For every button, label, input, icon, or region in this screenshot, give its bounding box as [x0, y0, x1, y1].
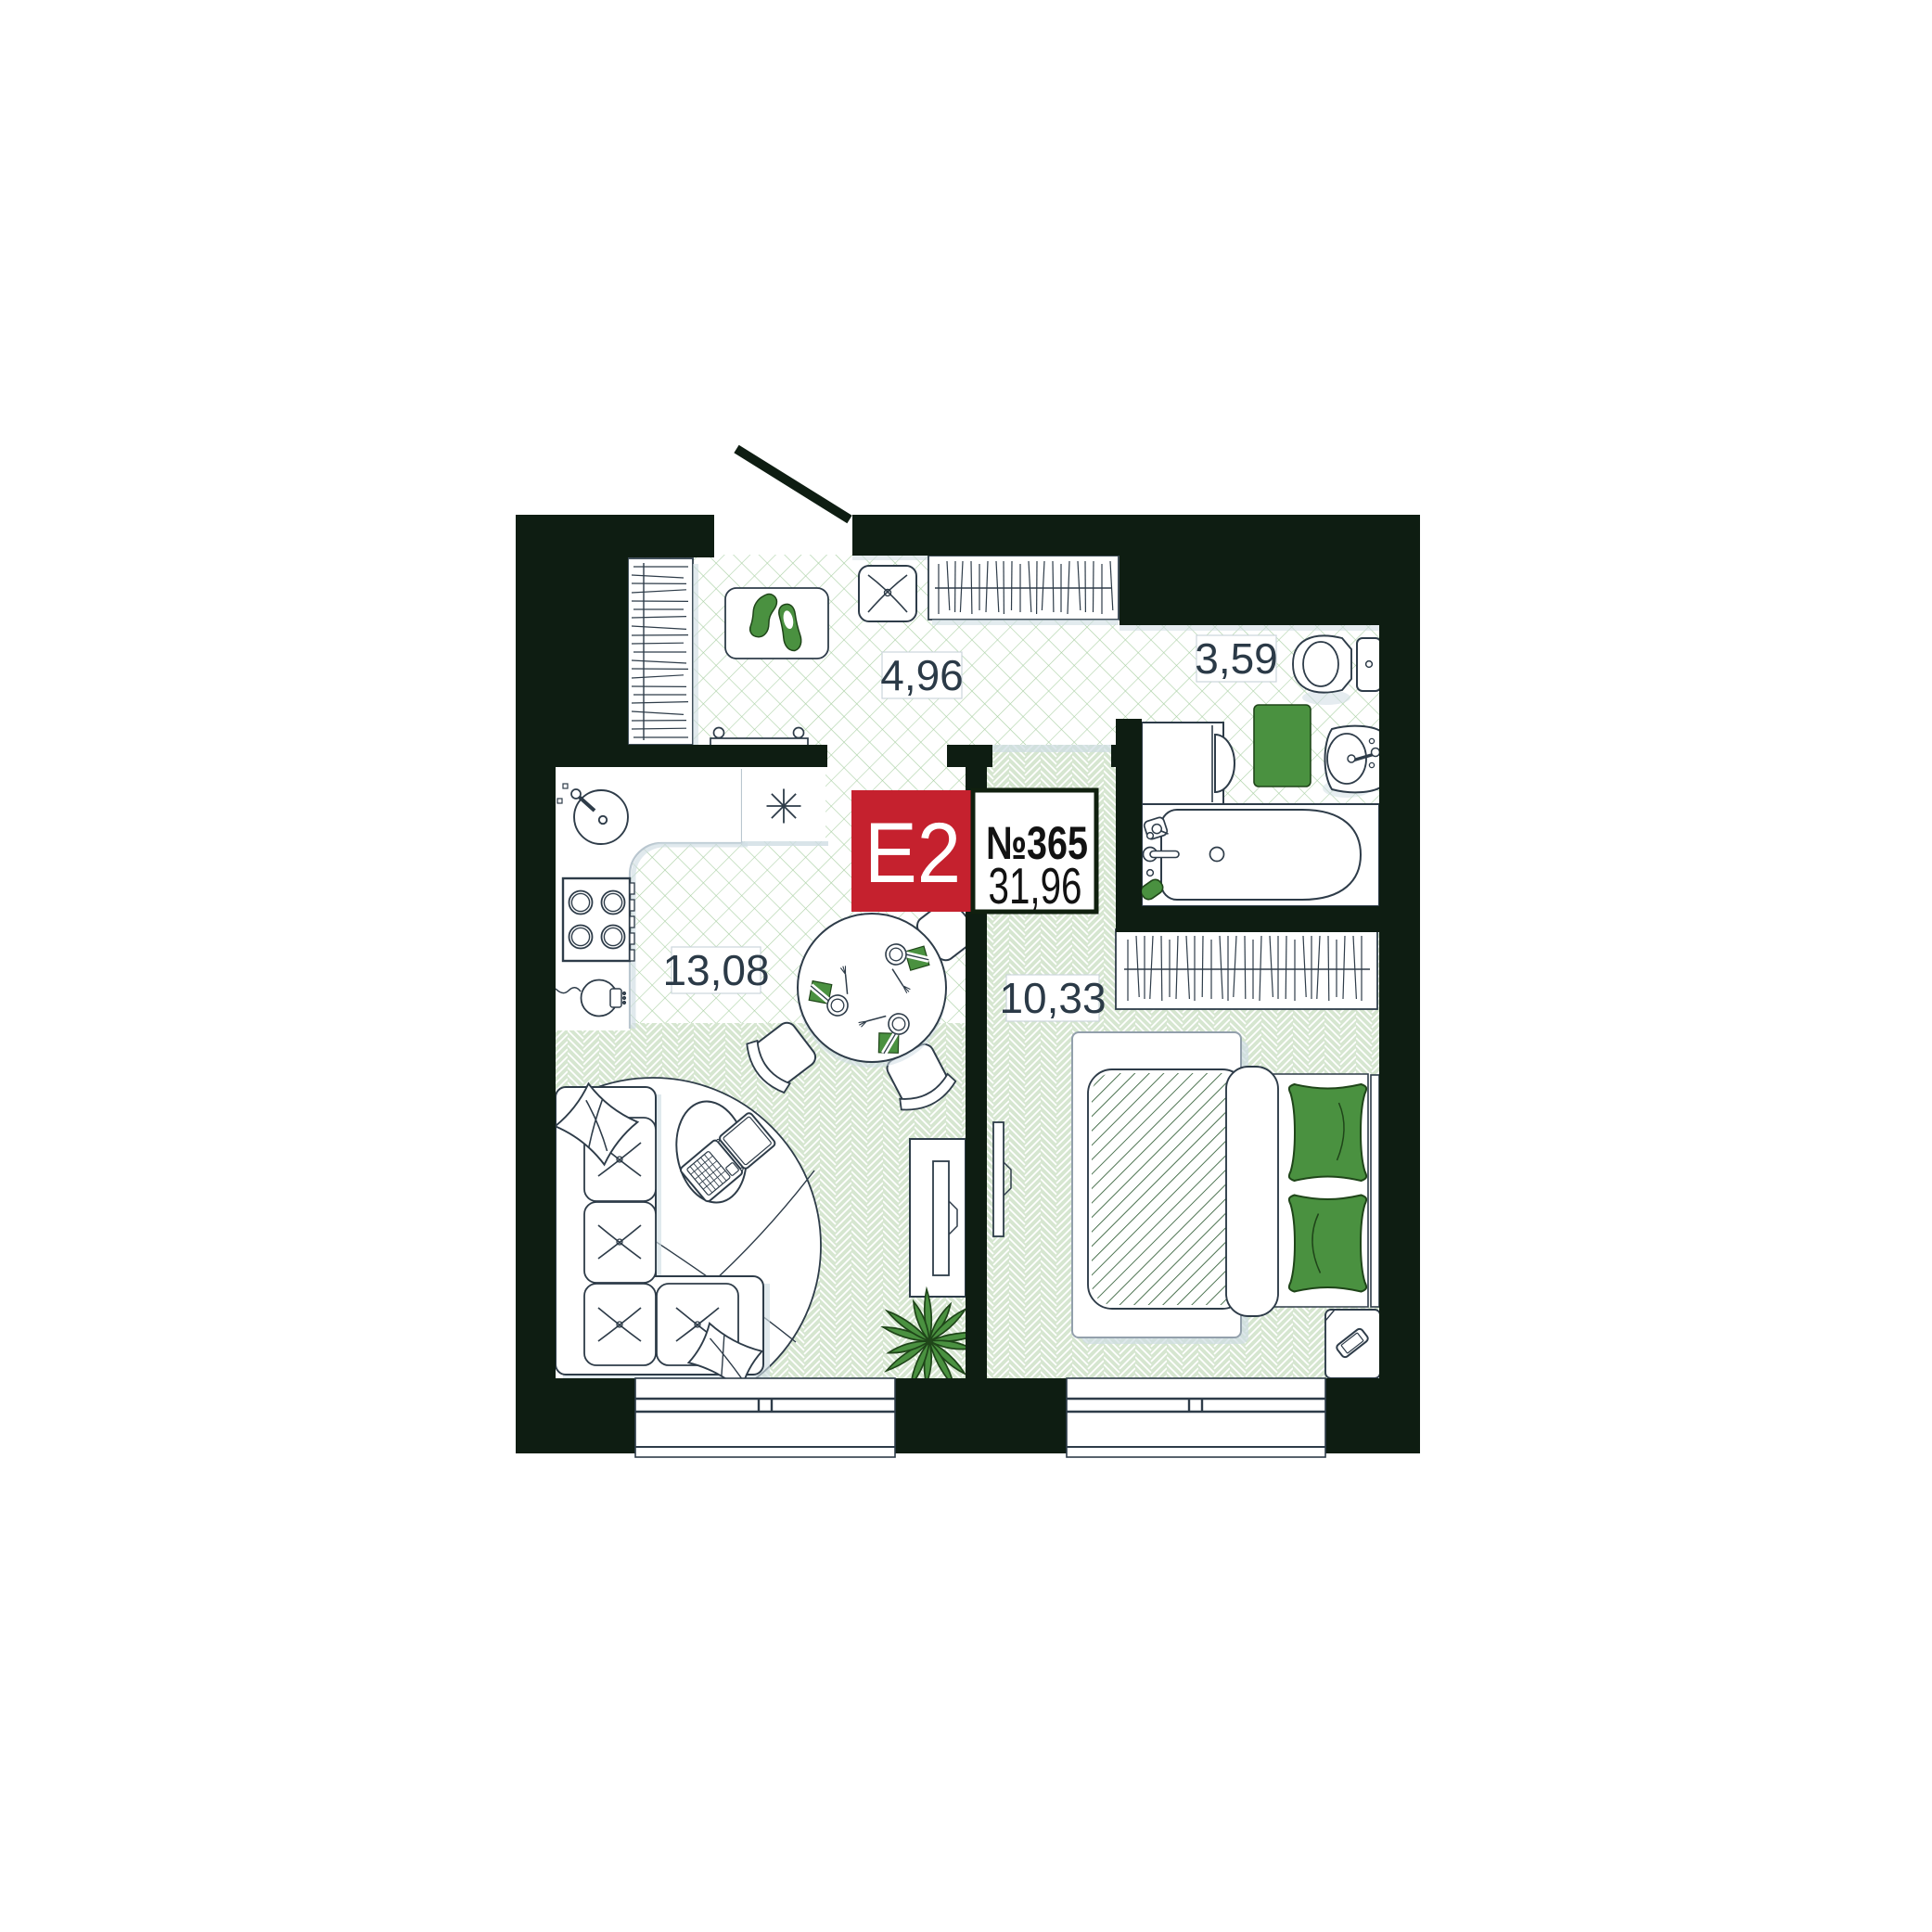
svg-text:10,33: 10,33	[999, 974, 1106, 1022]
svg-text:3,59: 3,59	[1195, 634, 1278, 683]
svg-text:4,96: 4,96	[880, 651, 964, 699]
svg-text:13,08: 13,08	[662, 946, 769, 994]
svg-text:31,96: 31,96	[989, 857, 1082, 915]
svg-text:Е2: Е2	[864, 806, 961, 901]
